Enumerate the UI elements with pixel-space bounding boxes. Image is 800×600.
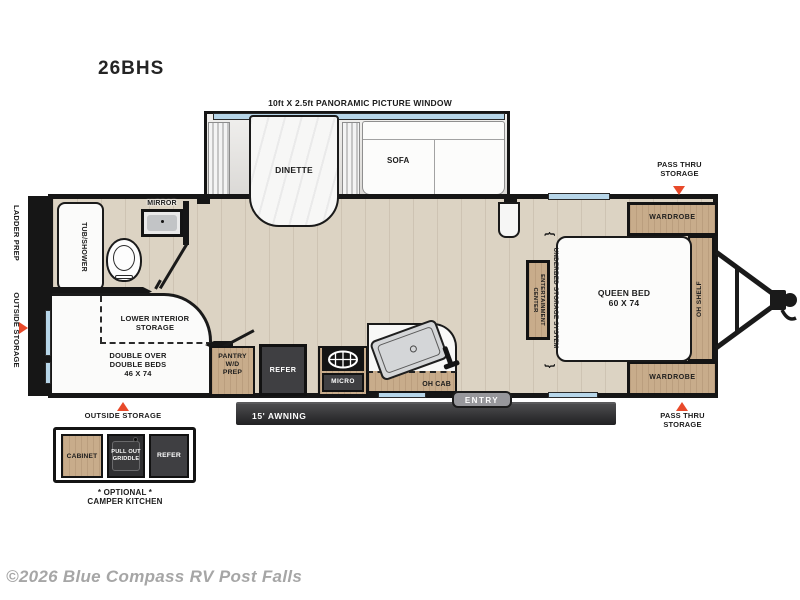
pass-thru-bottom-arrow bbox=[676, 402, 688, 411]
sofa-divider-line bbox=[434, 139, 436, 194]
bath-wall-right bbox=[183, 201, 189, 245]
dinette-label: DINETTE bbox=[251, 165, 337, 175]
sofa-label: SOFA bbox=[363, 156, 434, 165]
bunk-dashed-horizontal bbox=[100, 342, 212, 344]
camper-kitchen-refer: REFER bbox=[149, 434, 189, 478]
microwave-label: MICRO bbox=[324, 378, 362, 386]
hitch-graphic bbox=[714, 238, 800, 362]
refrigerator-label: REFER bbox=[262, 366, 304, 374]
griddle-knob-icon bbox=[133, 437, 138, 442]
rear-window-lower bbox=[45, 362, 51, 384]
entry-door-tab: ENTRY bbox=[452, 391, 512, 408]
outside-storage-left-arrow bbox=[19, 322, 28, 334]
mirror-label: MIRROR bbox=[135, 200, 189, 208]
wardrobe-bottom-label: WARDROBE bbox=[630, 374, 715, 382]
wardrobe-top-label: WARDROBE bbox=[630, 214, 715, 222]
queen-bed-label: QUEEN BED 60 X 74 bbox=[558, 288, 690, 308]
wardrobe-top: WARDROBE bbox=[627, 202, 718, 236]
pass-thru-top-label: PASS THRU STORAGE bbox=[632, 161, 727, 179]
wardrobe-bottom: WARDROBE bbox=[627, 361, 718, 396]
cooktop-grate-icon bbox=[322, 348, 364, 371]
camper-kitchen-box: CABINET PULL OUT GRIDDLE REFER bbox=[53, 427, 196, 483]
refrigerator: REFER bbox=[259, 344, 307, 396]
ladder-prep-label: LADDER PREP bbox=[8, 202, 20, 264]
bedroom-top-window bbox=[548, 193, 610, 200]
oh-shelf-label: OH SHELF bbox=[696, 244, 706, 354]
outside-storage-bottom-arrow bbox=[117, 402, 129, 411]
floorplan-title: 26BHS bbox=[98, 58, 164, 80]
entertainment-center: ENTERTAINMENT CENTER bbox=[526, 260, 550, 340]
outside-storage-bottom-label: OUTSIDE STORAGE bbox=[73, 412, 173, 421]
queen-bed: QUEEN BED 60 X 74 bbox=[556, 236, 692, 362]
microwave: MICRO bbox=[322, 373, 364, 392]
bedroom-nightstand bbox=[498, 202, 520, 238]
entry-label: ENTRY bbox=[454, 396, 510, 405]
camper-kitchen-cabinet-label: CABINET bbox=[61, 453, 103, 461]
oh-cab-label: OH CAB bbox=[422, 381, 451, 389]
toilet-bowl bbox=[113, 245, 135, 271]
bunk-dashed-vertical bbox=[100, 296, 102, 343]
sofa: SOFA bbox=[362, 121, 505, 195]
floorplan-page: 26BHS 10ft X 2.5ft PANORAMIC PICTURE WIN… bbox=[0, 0, 800, 600]
slideout-blind-left bbox=[208, 122, 230, 199]
dinette: DINETTE bbox=[249, 115, 339, 227]
pantry: PANTRY W/D PREP bbox=[210, 346, 255, 396]
awning-label: 15' AWNING bbox=[252, 411, 306, 421]
pass-thru-top-arrow bbox=[673, 186, 685, 195]
awning-bar: 15' AWNING bbox=[236, 402, 616, 425]
underbed-storage-label: UNDERBED STORAGE SYSTEM bbox=[549, 234, 559, 362]
camper-kitchen-griddle: PULL OUT GRIDDLE bbox=[107, 434, 145, 478]
lower-interior-storage-label: LOWER INTERIOR STORAGE bbox=[104, 315, 206, 333]
toilet-base bbox=[115, 275, 133, 279]
underbed-brace-bottom-icon: } bbox=[544, 364, 556, 368]
tub-shower: TUB/SHOWER bbox=[57, 202, 104, 291]
pass-thru-bottom-label: PASS THRU STORAGE bbox=[635, 412, 730, 430]
entertainment-center-label: ENTERTAINMENT CENTER bbox=[531, 261, 545, 339]
rear-window-upper bbox=[45, 310, 51, 356]
camper-kitchen-griddle-label: PULL OUT GRIDDLE bbox=[109, 449, 143, 462]
copyright-watermark: ©2026 Blue Compass RV Post Falls bbox=[6, 567, 302, 587]
bottom-window-bedroom bbox=[548, 392, 598, 398]
bath-sink bbox=[141, 209, 183, 237]
wall-cap-left bbox=[197, 194, 210, 204]
camper-kitchen-refer-label: REFER bbox=[151, 452, 187, 460]
pantry-label: PANTRY W/D PREP bbox=[212, 353, 253, 377]
panoramic-window-label: 10ft X 2.5ft PANORAMIC PICTURE WINDOW bbox=[205, 98, 515, 108]
bath-faucet-icon bbox=[161, 220, 164, 223]
bath-sink-basin bbox=[147, 215, 177, 231]
toilet-icon bbox=[106, 238, 142, 282]
camper-kitchen-cabinet: CABINET bbox=[61, 434, 103, 478]
double-beds-label: DOUBLE OVER DOUBLE BEDS 46 X 74 bbox=[78, 352, 198, 379]
tub-shower-label: TUB/SHOWER bbox=[75, 205, 87, 289]
slideout-blind-right bbox=[342, 122, 360, 199]
underbed-brace-top-icon: { bbox=[544, 232, 556, 236]
camper-kitchen-caption: * OPTIONAL * CAMPER KITCHEN bbox=[61, 488, 189, 507]
cooktop bbox=[322, 348, 364, 371]
